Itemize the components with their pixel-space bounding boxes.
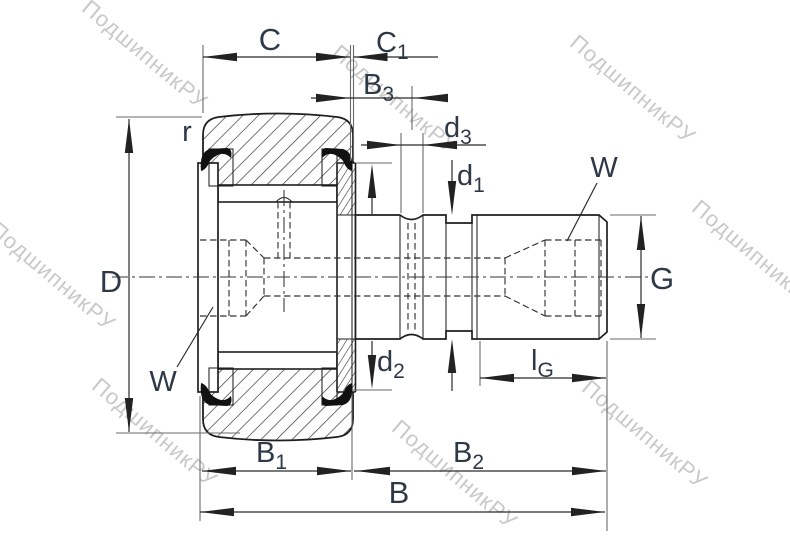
- label-W-right: W: [590, 152, 618, 184]
- label-lG: lG: [531, 345, 554, 382]
- watermark-text: ПодшипникРУ: [77, 0, 212, 114]
- watermark-text: ПодшипникРУ: [577, 375, 712, 494]
- label-W-left: W: [149, 366, 177, 398]
- label-B1: B1: [256, 437, 287, 474]
- label-B2: B2: [453, 437, 484, 474]
- collar-section-bottom: [337, 339, 356, 392]
- watermark-text: ПодшипникРУ: [687, 195, 790, 314]
- label-B3: B3: [363, 69, 394, 106]
- label-d1: d1: [457, 160, 485, 197]
- label-C1: C1: [376, 27, 409, 64]
- bearing-diagram: ПодшипникРУ ПодшипникРУ ПодшипникРУ Подш…: [0, 0, 790, 547]
- watermark-text: ПодшипникРУ: [565, 30, 700, 149]
- label-B: B: [389, 475, 410, 510]
- label-r: r: [182, 116, 192, 148]
- label-D: D: [100, 264, 122, 299]
- collar-section-top: [337, 163, 356, 215]
- drawing-canvas: ПодшипникРУ ПодшипникРУ ПодшипникРУ Подш…: [0, 0, 790, 547]
- label-C: C: [259, 22, 281, 57]
- label-d2: d2: [377, 346, 405, 383]
- label-G: G: [650, 261, 674, 296]
- label-d3: d3: [444, 112, 472, 149]
